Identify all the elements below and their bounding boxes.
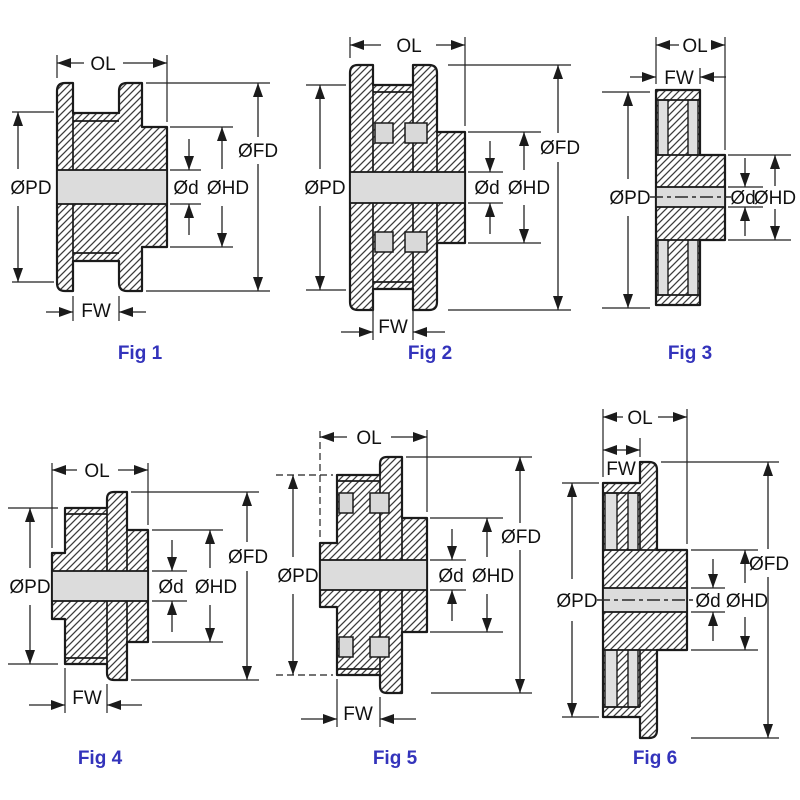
fig5-label-hd: ØHD bbox=[472, 566, 514, 587]
fig6-drawing: OL FW ØPD ØFD ØHD Ød Fig 6 bbox=[555, 400, 800, 780]
fig3-drawing: OL FW ØPD Ød ØHD Fig 3 bbox=[590, 0, 800, 380]
fig2-label-fw: FW bbox=[378, 317, 408, 338]
fig5-label-ol: OL bbox=[356, 428, 381, 449]
fig4-label-d: Ød bbox=[158, 577, 183, 598]
fig1-label-ol: OL bbox=[90, 54, 115, 75]
fig5-label-d: Ød bbox=[438, 566, 463, 587]
fig2-label-fd: ØFD bbox=[540, 138, 580, 159]
fig2-drawing: OL ØPD ØFD ØHD Ød FW Fig 2 bbox=[285, 0, 580, 380]
fig1-drawing: OL ØPD ØFD ØHD Ød FW Fig 1 bbox=[0, 0, 280, 380]
fig4-drawing: OL ØPD ØFD ØHD Ød FW Fig 4 bbox=[0, 420, 280, 780]
fig4-label-hd: ØHD bbox=[195, 577, 237, 598]
fig2-caption: Fig 2 bbox=[408, 343, 452, 364]
fig4-label-fw: FW bbox=[72, 688, 102, 709]
fig5-drawing: OL ØPD ØFD ØHD Ød FW Fig 5 bbox=[270, 400, 570, 780]
fig1-bore bbox=[57, 170, 167, 204]
fig4-label-pd: ØPD bbox=[9, 577, 50, 598]
fig3-label-d: Ød bbox=[730, 188, 755, 209]
fig3-bore bbox=[656, 187, 725, 207]
fig4-caption: Fig 4 bbox=[78, 748, 123, 769]
fig3-label-ol: OL bbox=[682, 36, 707, 57]
fig1-label-fw: FW bbox=[81, 301, 111, 322]
fig5-label-fd: ØFD bbox=[501, 527, 541, 548]
fig4-label-ol: OL bbox=[84, 461, 109, 482]
fig3-label-pd: ØPD bbox=[609, 188, 650, 209]
fig5-caption: Fig 5 bbox=[373, 748, 418, 769]
fig6-label-d: Ød bbox=[695, 591, 720, 612]
fig2-label-ol: OL bbox=[396, 36, 421, 57]
fig4-bore bbox=[52, 571, 148, 601]
technical-drawing-sheet: OL ØPD ØFD ØHD Ød FW Fig 1 bbox=[0, 0, 800, 800]
fig6-label-fd: ØFD bbox=[749, 554, 789, 575]
fig2-bore bbox=[350, 172, 465, 203]
fig2-label-hd: ØHD bbox=[508, 178, 550, 199]
fig6-label-pd: ØPD bbox=[556, 591, 597, 612]
fig3-label-fw: FW bbox=[664, 68, 694, 89]
fig3-label-hd: ØHD bbox=[754, 188, 796, 209]
fig6-label-ol: OL bbox=[627, 408, 652, 429]
fig5-label-pd: ØPD bbox=[277, 566, 318, 587]
fig1-caption: Fig 1 bbox=[118, 343, 163, 364]
fig1-label-d: Ød bbox=[173, 178, 198, 199]
fig6-label-hd: ØHD bbox=[726, 591, 768, 612]
fig1-label-fd: ØFD bbox=[238, 141, 278, 162]
fig1-label-pd: ØPD bbox=[10, 178, 51, 199]
fig2-label-pd: ØPD bbox=[304, 178, 345, 199]
fig5-bore bbox=[320, 560, 427, 590]
fig6-label-fw: FW bbox=[606, 459, 636, 480]
fig4-label-fd: ØFD bbox=[228, 547, 268, 568]
fig3-caption: Fig 3 bbox=[668, 343, 712, 364]
fig2-label-d: Ød bbox=[474, 178, 499, 199]
fig1-label-hd: ØHD bbox=[207, 178, 249, 199]
fig5-label-fw: FW bbox=[343, 704, 373, 725]
fig6-caption: Fig 6 bbox=[633, 748, 677, 769]
